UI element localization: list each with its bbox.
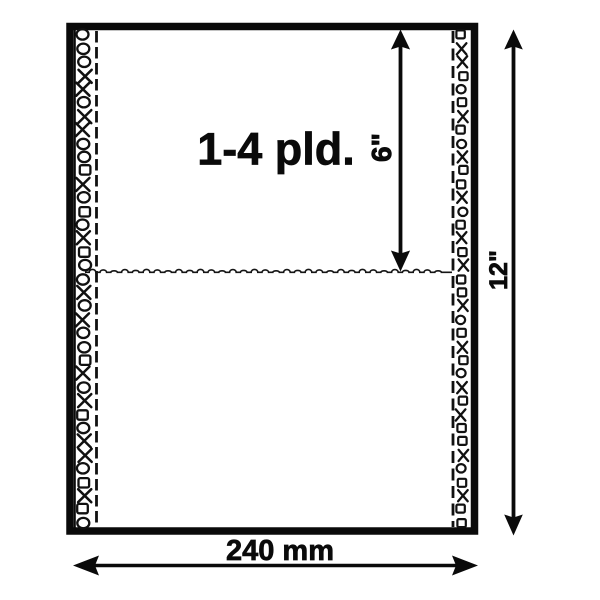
svg-text:6": 6" — [366, 133, 397, 162]
svg-text:12": 12" — [485, 250, 513, 290]
svg-text:1-4 pld.: 1-4 pld. — [197, 124, 355, 175]
svg-text:240 mm: 240 mm — [226, 535, 334, 567]
